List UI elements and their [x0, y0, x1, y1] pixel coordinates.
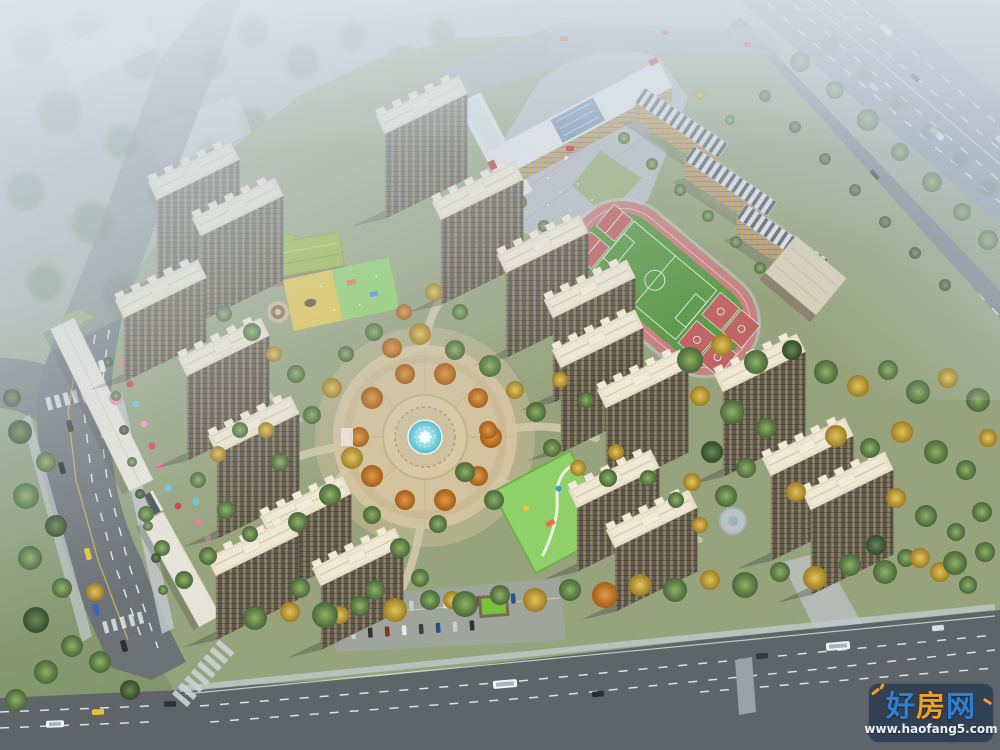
- sparkle-decoration: [983, 698, 992, 705]
- brand-char: 好: [886, 689, 916, 723]
- scene: [0, 0, 1000, 750]
- brand-char: 网: [946, 689, 976, 723]
- watermark: 好房网 www.haofang5.com: [868, 683, 994, 743]
- brand-char: 房: [916, 689, 946, 723]
- brand-name: 好房网: [886, 691, 976, 721]
- sparkle-decoration: [871, 688, 880, 696]
- aerial-render: 好房网 www.haofang5.com: [0, 0, 1000, 750]
- site-url: www.haofang5.com: [864, 722, 997, 736]
- horizon-haze: [0, 0, 1000, 150]
- sparkle-decoration: [879, 683, 885, 690]
